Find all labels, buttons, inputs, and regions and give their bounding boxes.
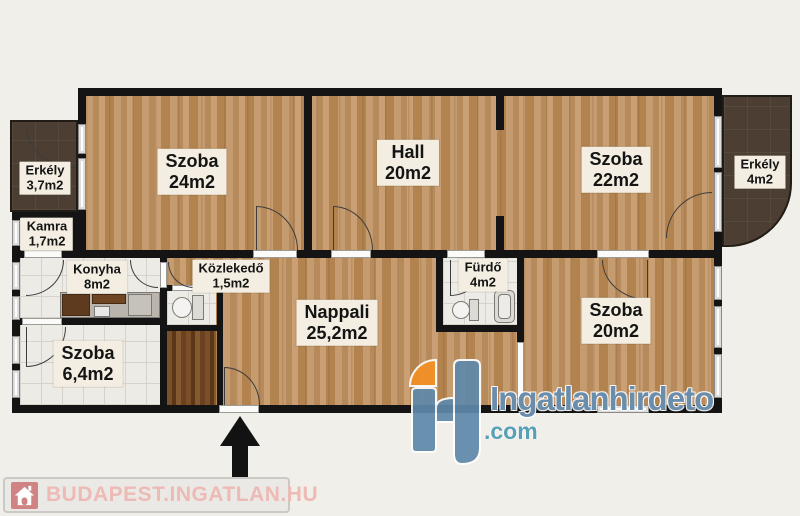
room-area: 1,7m2 xyxy=(27,234,67,249)
door-szoba20 xyxy=(597,250,649,258)
window-kamra xyxy=(12,220,20,246)
footer-logo-bar: BUDAPEST.INGATLAN.HU xyxy=(3,477,290,513)
window-szoba64-1 xyxy=(12,336,20,364)
room-label-erkely-left: Erkély 3,7m2 xyxy=(19,162,70,195)
door-kamra-konyha xyxy=(24,250,62,258)
window-szoba20-right-1 xyxy=(714,266,722,300)
furdo-toilet-bowl xyxy=(452,301,470,319)
room-area: 24m2 xyxy=(165,172,218,193)
room-area: 3,7m2 xyxy=(25,178,64,193)
window-szoba22-balcony-1 xyxy=(714,116,722,168)
wall-hall-szoba22-top xyxy=(496,96,504,130)
room-name: Szoba xyxy=(61,343,114,364)
room-label-szoba20: Szoba 20m2 xyxy=(581,298,650,344)
room-area: 20m2 xyxy=(589,321,642,342)
watermark-logo-icon xyxy=(404,356,494,468)
room-name: Erkély xyxy=(740,157,779,172)
house-icon xyxy=(11,482,38,509)
room-area: 6,4m2 xyxy=(61,364,114,385)
wall-wc-bottom xyxy=(160,325,223,331)
window-szoba20-right-2 xyxy=(714,306,722,348)
room-label-hall: Hall 20m2 xyxy=(377,140,439,186)
kitchen-worktop-dark xyxy=(92,294,126,304)
room-name: Közlekedő xyxy=(198,261,263,276)
watermark: Ingatlanhirdeto .com xyxy=(404,356,800,476)
door-furdo xyxy=(447,250,485,258)
room-label-kozlekedo: Közlekedő 1,5m2 xyxy=(192,260,269,293)
room-area: 4m2 xyxy=(740,172,779,187)
room-label-erkely-right: Erkély 4m2 xyxy=(734,156,785,189)
entrance-arrow-icon xyxy=(220,416,260,478)
room-area: 25,2m2 xyxy=(304,323,369,344)
window-konyha-1 xyxy=(12,262,20,290)
furdo-bathtub-inner xyxy=(498,294,511,319)
wall-hall-szoba22-bottom xyxy=(496,216,504,250)
arrow-head xyxy=(220,416,260,446)
room-name: Erkély xyxy=(25,163,64,178)
room-area: 4m2 xyxy=(465,275,502,290)
room-label-szoba22: Szoba 22m2 xyxy=(581,147,650,193)
wall-furdo-bottom xyxy=(436,325,524,332)
window-szoba64-2 xyxy=(12,370,20,398)
window-szoba24-balcony-2 xyxy=(78,158,86,210)
watermark-brand-text: Ingatlanhirdeto xyxy=(490,380,713,418)
room-area: 20m2 xyxy=(385,163,431,184)
room-label-szoba64: Szoba 6,4m2 xyxy=(53,341,122,387)
wall-szoba24-hall xyxy=(304,96,312,250)
room-area: 22m2 xyxy=(589,170,642,191)
room-name: Fürdő xyxy=(465,260,502,275)
wardrobe-strip-floor xyxy=(167,325,216,405)
door-szoba24 xyxy=(253,250,297,258)
wall-top xyxy=(78,88,722,96)
room-name: Kamra xyxy=(27,219,67,234)
room-name: Szoba xyxy=(589,149,642,170)
wc-toilet-tank xyxy=(192,295,204,320)
kitchen-sink xyxy=(94,306,110,317)
window-konyha-2 xyxy=(12,296,20,320)
door-konyha-szoba64 xyxy=(22,318,62,325)
window-szoba22-balcony-2 xyxy=(714,172,722,232)
room-name: Szoba xyxy=(589,300,642,321)
furdo-toilet-tank xyxy=(469,299,479,321)
room-area: 1,5m2 xyxy=(198,276,263,291)
room-label-nappali: Nappali 25,2m2 xyxy=(296,300,377,346)
room-label-kamra: Kamra 1,7m2 xyxy=(21,218,73,251)
arrow-shaft xyxy=(232,444,248,478)
room-name: Konyha xyxy=(73,262,121,277)
footer-site-text: BUDAPEST.INGATLAN.HU xyxy=(46,483,318,507)
door-konyha-kozlekedo xyxy=(160,262,167,288)
room-label-konyha: Konyha 8m2 xyxy=(67,261,127,294)
kitchen-fridge xyxy=(128,294,152,316)
room-label-furdo: Fürdő 4m2 xyxy=(459,259,508,292)
wall-wardrobe-right xyxy=(217,325,223,405)
window-szoba24-balcony-1 xyxy=(78,124,86,154)
room-name: Hall xyxy=(385,142,431,163)
door-entrance xyxy=(219,405,259,413)
watermark-tld-text: .com xyxy=(484,418,538,445)
room-name: Nappali xyxy=(304,302,369,323)
door-hall xyxy=(331,250,371,258)
wc-toilet-bowl xyxy=(172,297,192,318)
room-area: 8m2 xyxy=(73,277,121,292)
kitchen-cabinet-dark xyxy=(62,294,90,316)
floor-plan: Szoba 24m2 Hall 20m2 Szoba 22m2 Erkély 3… xyxy=(0,0,800,516)
wall-furdo-left xyxy=(436,258,443,332)
room-label-szoba24: Szoba 24m2 xyxy=(157,149,226,195)
room-name: Szoba xyxy=(165,151,218,172)
